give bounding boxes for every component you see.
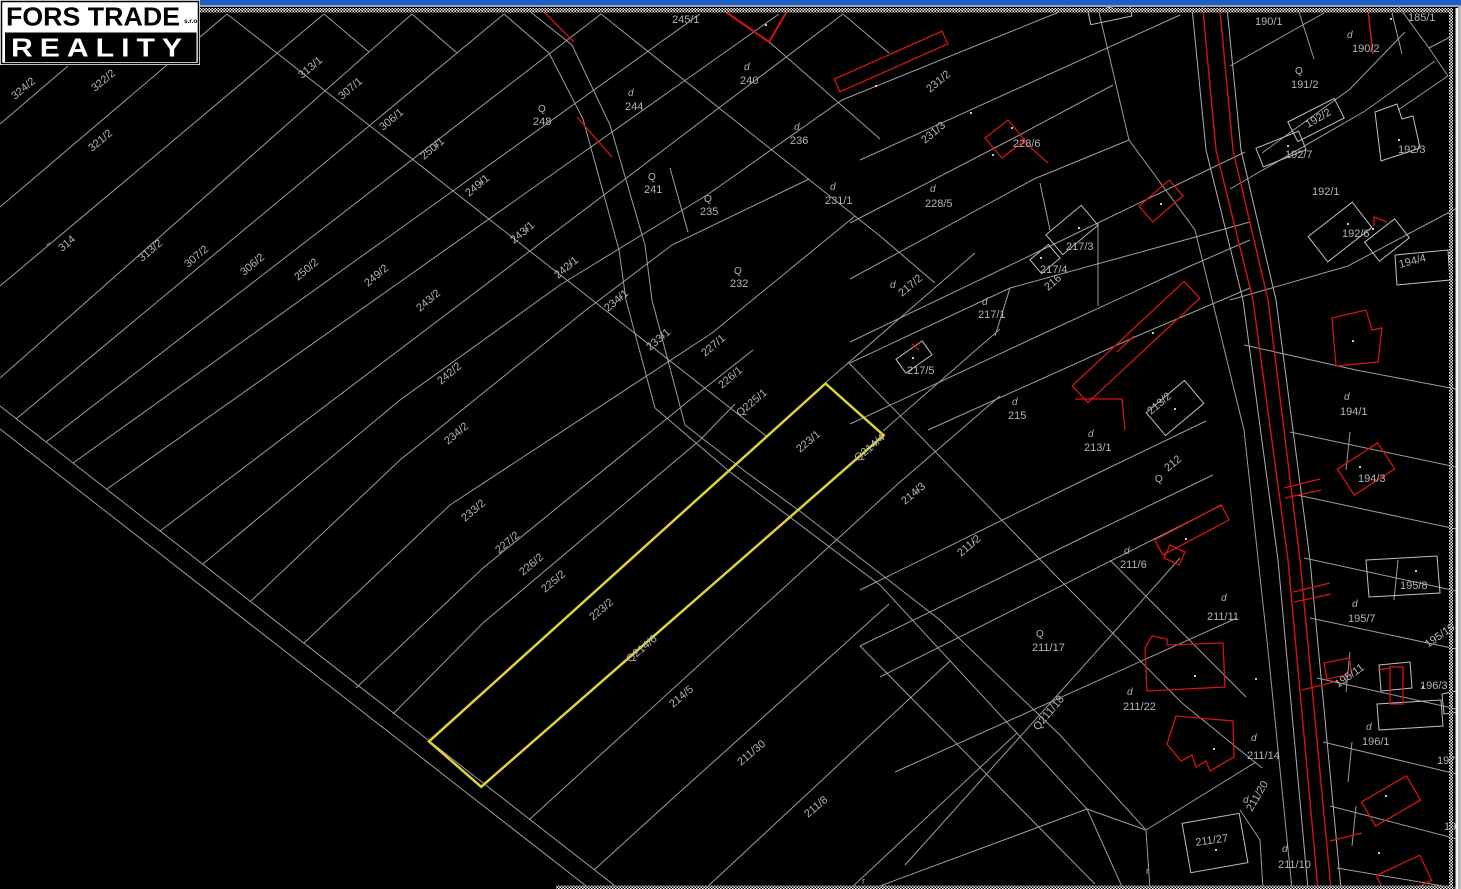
svg-text:Q: Q	[1155, 474, 1163, 485]
svg-text:Q: Q	[734, 266, 742, 277]
svg-text:d: d	[1347, 30, 1353, 41]
svg-text:d: d	[1344, 392, 1350, 403]
svg-text:241: 241	[644, 184, 662, 196]
svg-text:240: 240	[740, 75, 758, 87]
svg-text:245/1: 245/1	[672, 14, 700, 26]
svg-text:d: d	[1243, 795, 1249, 806]
svg-text:211/6: 211/6	[1120, 559, 1147, 571]
svg-text:192/6: 192/6	[1342, 228, 1370, 240]
svg-text:228/5: 228/5	[925, 198, 953, 210]
svg-text:195/8: 195/8	[1400, 580, 1428, 592]
svg-text:d: d	[1282, 844, 1288, 855]
svg-text:d: d	[1352, 599, 1358, 610]
svg-text:211/17: 211/17	[1032, 642, 1065, 654]
svg-text:d: d	[1251, 733, 1257, 744]
svg-text:215: 215	[1008, 410, 1026, 422]
svg-text:195/7: 195/7	[1348, 613, 1376, 625]
svg-text:d: d	[982, 297, 988, 308]
svg-text:231/1: 231/1	[825, 195, 853, 207]
svg-text:190/2: 190/2	[1352, 43, 1380, 55]
svg-text:r: r	[1146, 866, 1149, 876]
svg-text:196/3: 196/3	[1420, 680, 1448, 692]
svg-text:194/3: 194/3	[1358, 473, 1386, 485]
svg-text:192/1: 192/1	[1312, 186, 1340, 198]
svg-text:244: 244	[625, 101, 643, 113]
svg-text:FORS TRADE: FORS TRADE	[6, 2, 180, 32]
svg-text:Q: Q	[648, 172, 656, 183]
svg-text:217/3: 217/3	[1066, 241, 1094, 253]
svg-text:194/1: 194/1	[1340, 406, 1368, 418]
svg-text:196/1: 196/1	[1362, 736, 1390, 748]
svg-text:191/2: 191/2	[1291, 79, 1319, 91]
svg-text:211/22: 211/22	[1123, 701, 1156, 713]
svg-text:192/7: 192/7	[1285, 149, 1313, 161]
svg-text:d: d	[1127, 687, 1133, 698]
svg-text:228/6: 228/6	[1013, 138, 1041, 150]
svg-text:d: d	[794, 122, 800, 133]
svg-text:192/3: 192/3	[1398, 144, 1426, 156]
svg-text:217/5: 217/5	[907, 365, 935, 377]
svg-text:211/11: 211/11	[1207, 611, 1239, 623]
svg-text:d: d	[1088, 429, 1094, 440]
svg-text:d: d	[930, 184, 936, 195]
svg-text:236: 236	[790, 135, 808, 147]
svg-text:185/1: 185/1	[1408, 12, 1436, 24]
svg-text:d: d	[744, 62, 750, 73]
svg-text:248: 248	[533, 116, 551, 128]
svg-text:d: d	[830, 182, 836, 193]
svg-text:s.r.o.: s.r.o.	[184, 18, 199, 25]
svg-text:d: d	[1124, 546, 1130, 557]
svg-text:d: d	[890, 280, 896, 291]
svg-text:Q: Q	[1295, 66, 1303, 77]
svg-text:d: d	[1221, 593, 1227, 604]
svg-text:Q: Q	[1036, 629, 1044, 640]
svg-text:d: d	[1012, 397, 1018, 408]
svg-text:211/14: 211/14	[1247, 750, 1280, 762]
svg-text:REALITY: REALITY	[11, 33, 189, 63]
svg-text:d: d	[628, 88, 634, 99]
svg-text:232: 232	[730, 278, 748, 290]
svg-text:Q: Q	[538, 104, 546, 115]
svg-text:211/10: 211/10	[1278, 859, 1311, 871]
svg-text:217/1: 217/1	[978, 309, 1006, 321]
svg-text:r: r	[862, 876, 865, 886]
svg-text:190/1: 190/1	[1255, 16, 1283, 28]
svg-text:213/1: 213/1	[1084, 442, 1112, 454]
svg-text:d: d	[1366, 722, 1372, 733]
svg-text:235: 235	[700, 206, 718, 218]
svg-text:Q: Q	[704, 194, 712, 205]
